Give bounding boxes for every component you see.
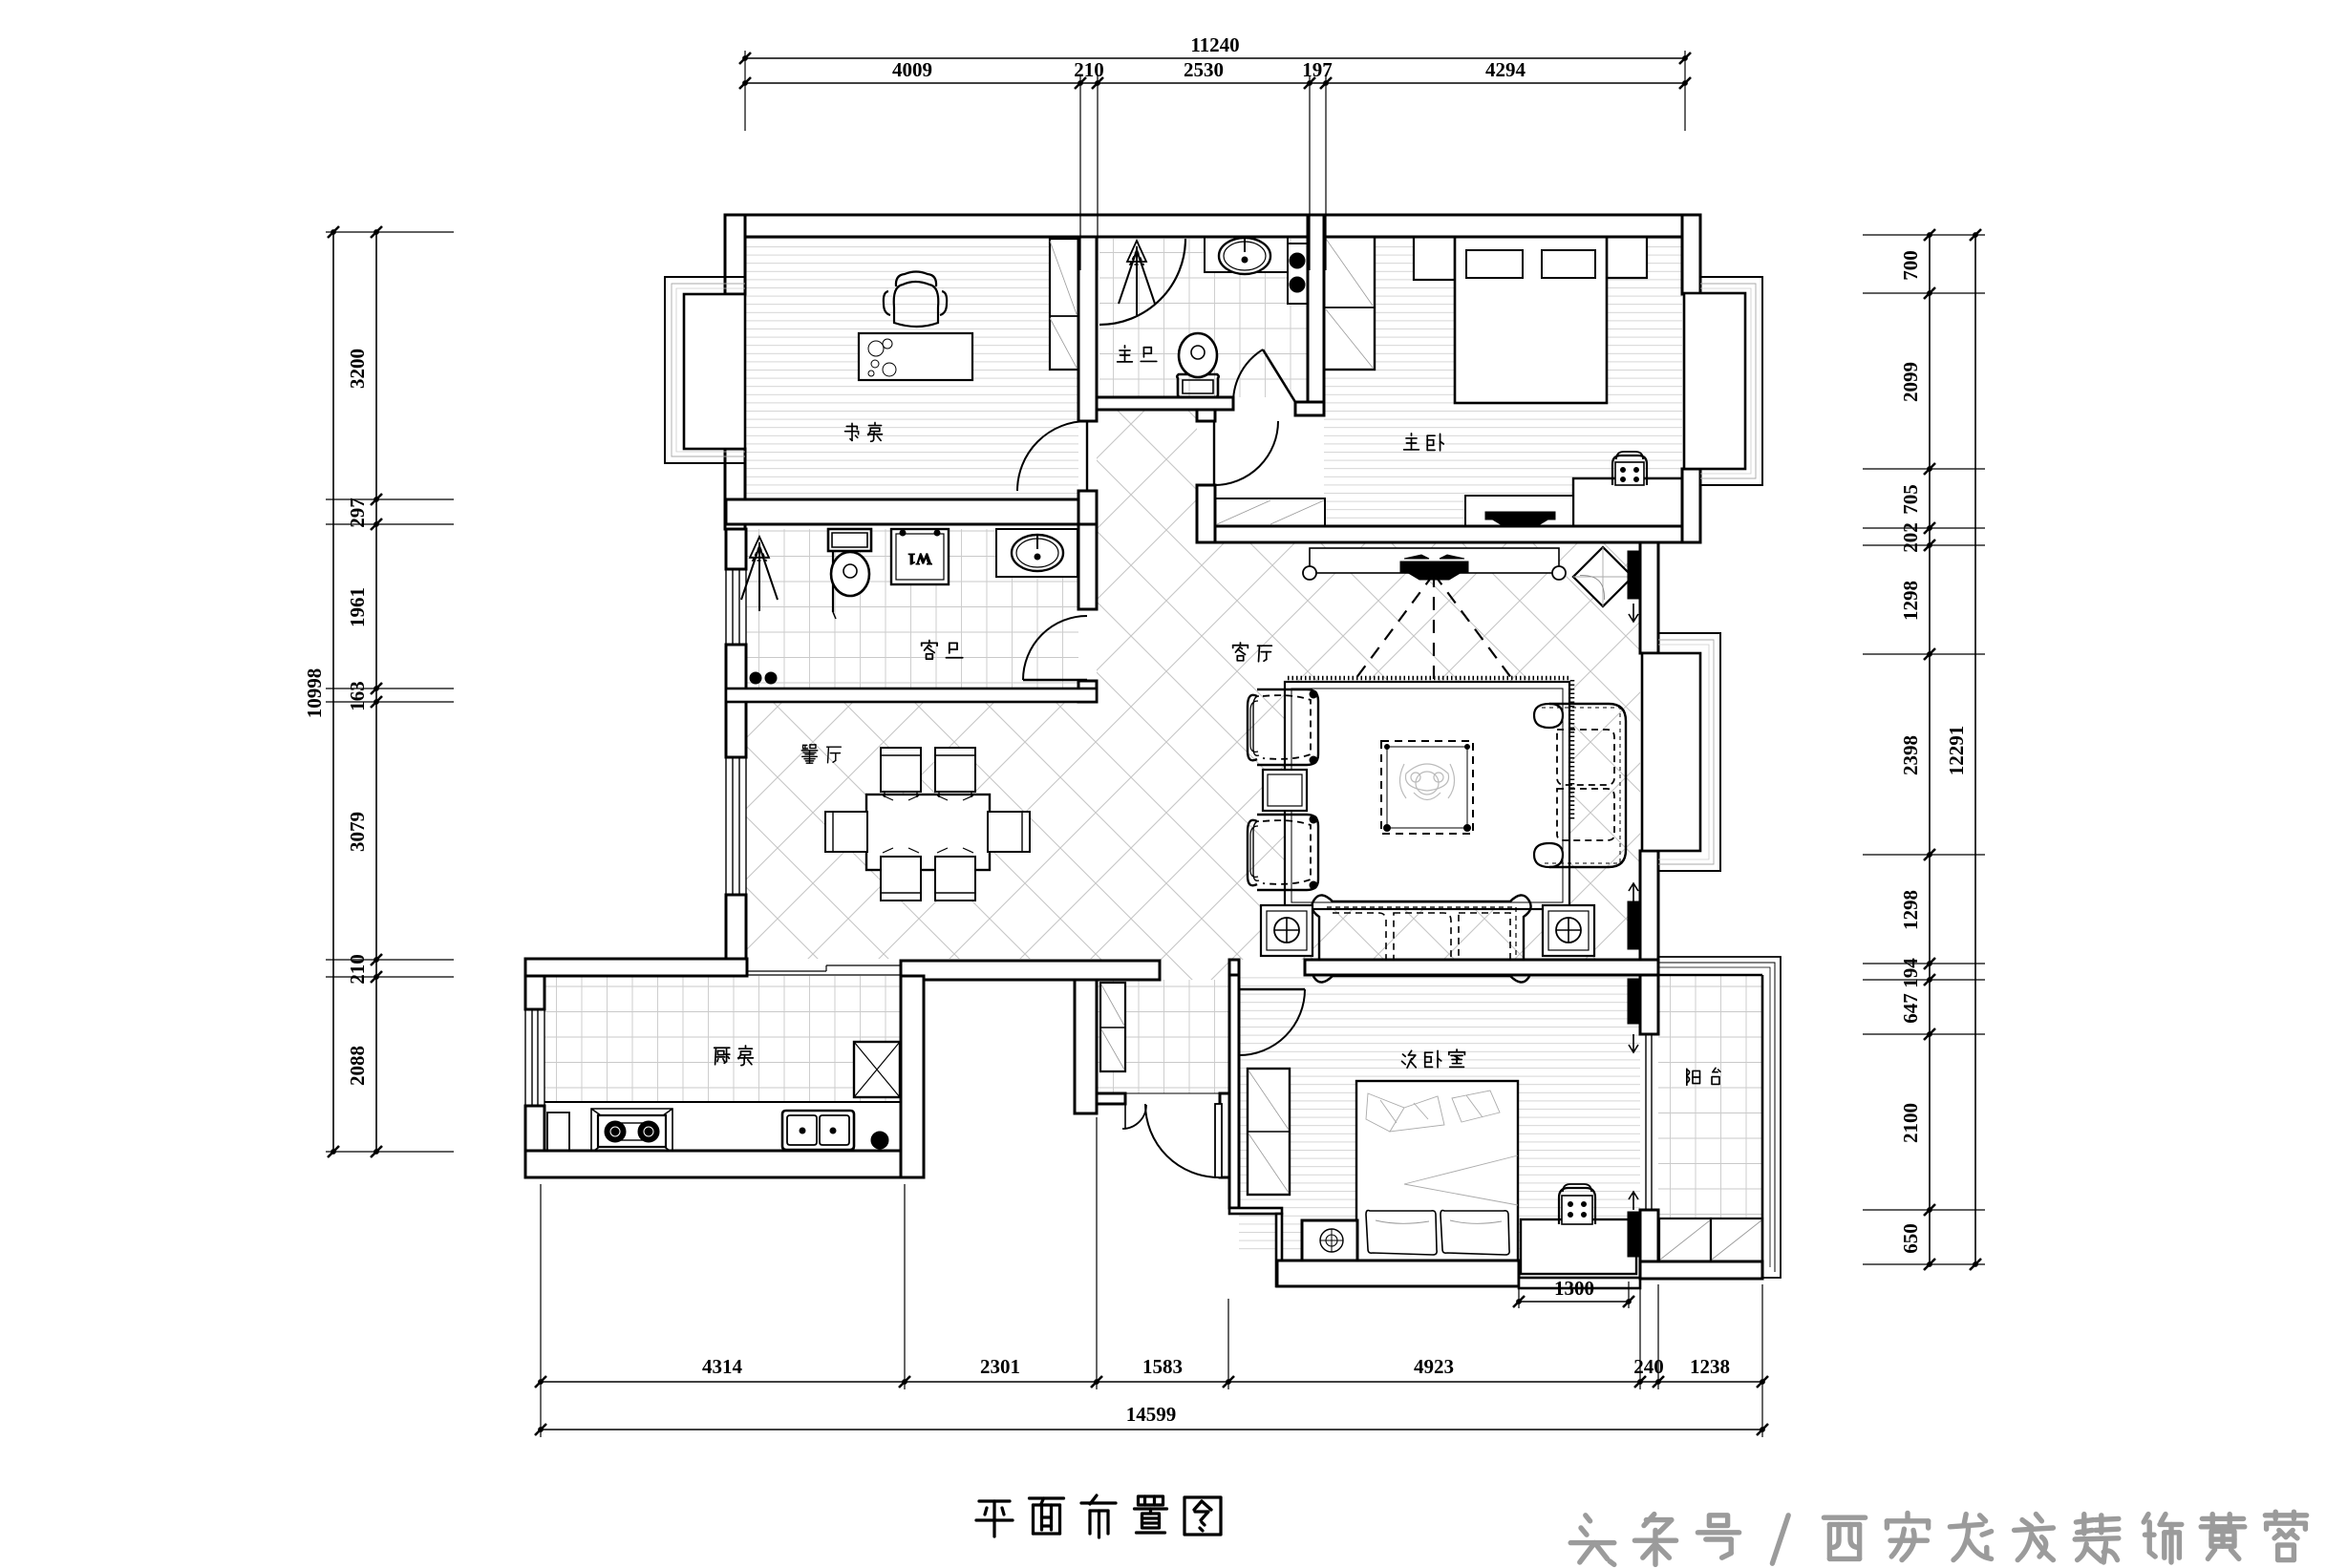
svg-text:297: 297 — [346, 498, 369, 528]
svg-text:2301: 2301 — [980, 1355, 1020, 1378]
svg-text:1961: 1961 — [346, 587, 369, 627]
svg-text:2100: 2100 — [1899, 1103, 1922, 1143]
svg-text:10998: 10998 — [303, 668, 326, 719]
svg-text:11240: 11240 — [1190, 33, 1239, 56]
svg-text:202: 202 — [1899, 522, 1922, 553]
svg-text:2088: 2088 — [346, 1046, 369, 1086]
svg-text:14599: 14599 — [1126, 1403, 1177, 1426]
svg-text:4314: 4314 — [702, 1355, 743, 1378]
svg-text:12291: 12291 — [1945, 726, 1968, 776]
svg-text:700: 700 — [1899, 250, 1922, 281]
svg-text:197: 197 — [1302, 58, 1333, 81]
svg-text:4294: 4294 — [1485, 58, 1526, 81]
svg-text:1583: 1583 — [1142, 1355, 1183, 1378]
svg-text:647: 647 — [1899, 993, 1922, 1024]
svg-text:210: 210 — [1074, 58, 1104, 81]
svg-text:1298: 1298 — [1899, 581, 1922, 621]
svg-text:1300: 1300 — [1554, 1277, 1594, 1300]
svg-text:2530: 2530 — [1184, 58, 1224, 81]
svg-text:3200: 3200 — [346, 349, 369, 389]
svg-text:2398: 2398 — [1899, 735, 1922, 775]
svg-text:2099: 2099 — [1899, 362, 1922, 402]
svg-text:210: 210 — [346, 954, 369, 985]
svg-text:1298: 1298 — [1899, 890, 1922, 930]
svg-text:163: 163 — [346, 681, 369, 711]
svg-text:3079: 3079 — [346, 812, 369, 852]
svg-text:W1: W1 — [907, 550, 932, 568]
svg-text:4009: 4009 — [892, 58, 932, 81]
svg-text:650: 650 — [1899, 1223, 1922, 1254]
svg-text:1238: 1238 — [1690, 1355, 1730, 1378]
svg-text:4923: 4923 — [1414, 1355, 1454, 1378]
svg-text:240: 240 — [1633, 1355, 1664, 1378]
svg-text:194: 194 — [1899, 958, 1922, 988]
svg-text:705: 705 — [1899, 484, 1922, 515]
